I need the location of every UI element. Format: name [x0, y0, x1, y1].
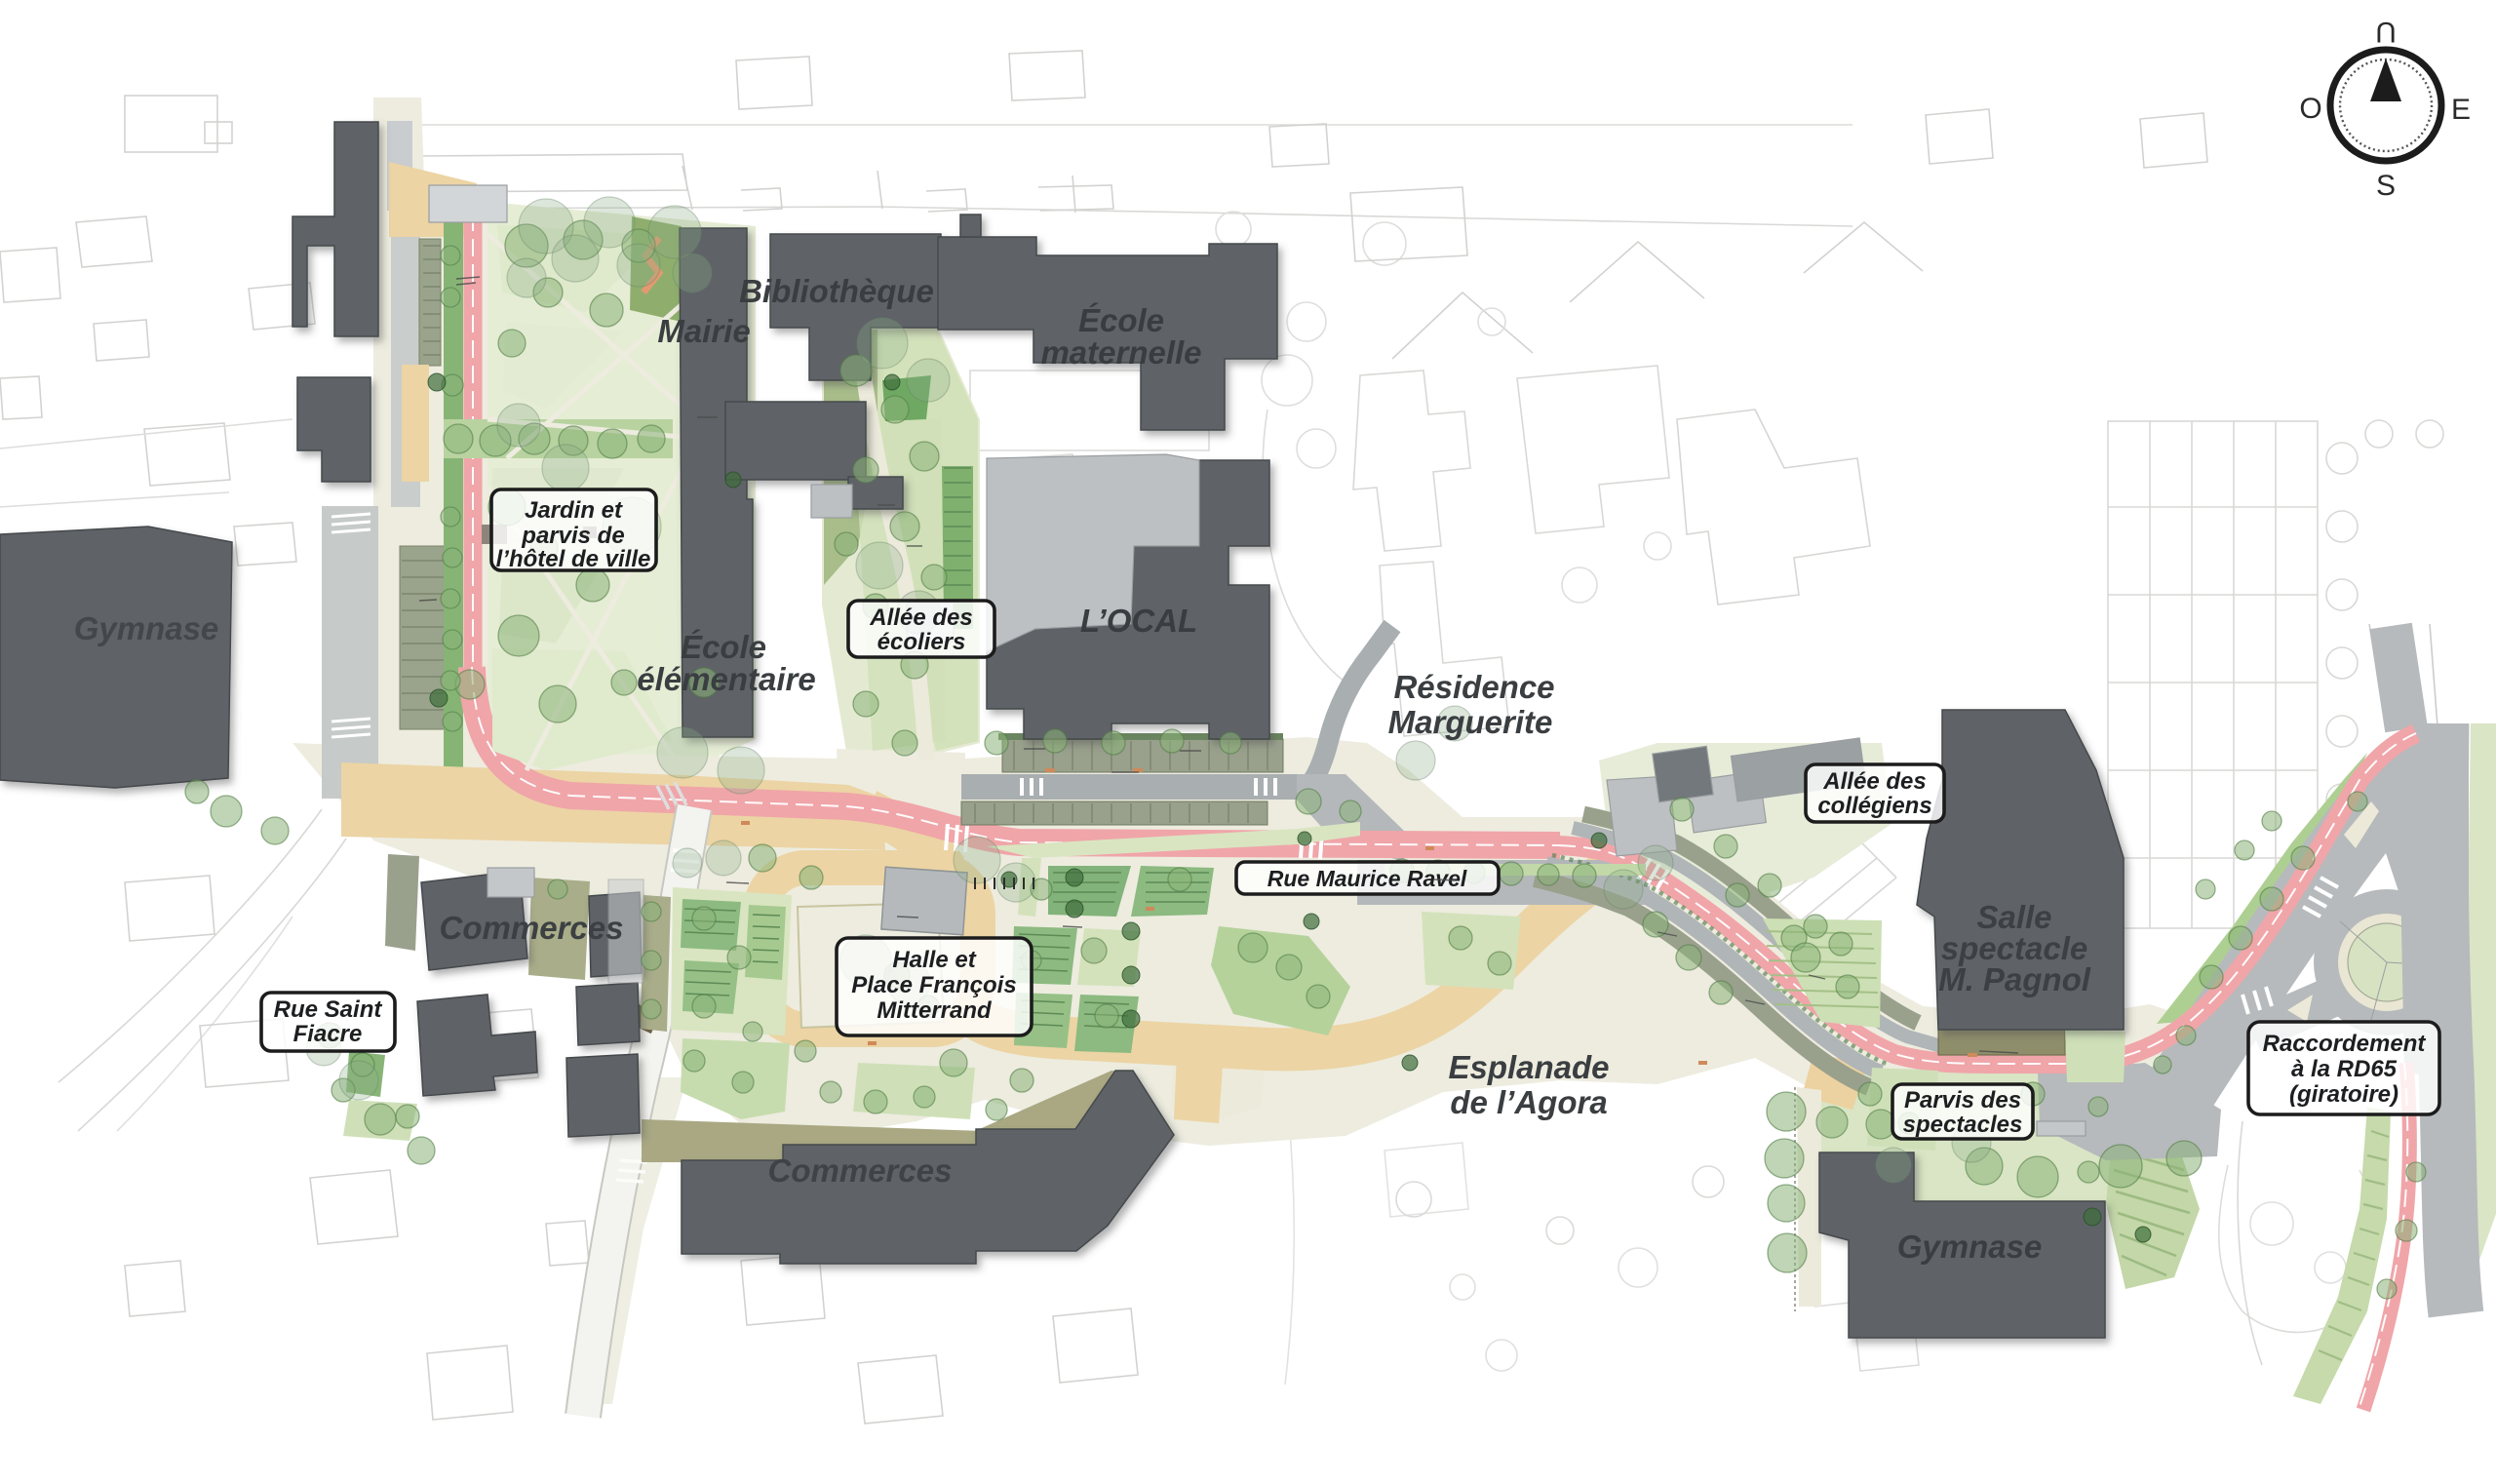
svg-text:à la RD65: à la RD65: [2291, 1056, 2398, 1082]
svg-text:écoliers: écoliers: [877, 629, 966, 655]
svg-text:Rue Maurice Ravel: Rue Maurice Ravel: [1267, 866, 1467, 891]
svg-text:Jardin et: Jardin et: [525, 497, 623, 524]
svg-text:Marguerite: Marguerite: [1388, 704, 1553, 740]
svg-text:Place François: Place François: [851, 972, 1016, 998]
svg-text:O: O: [2299, 93, 2321, 125]
svg-text:Parvis des: Parvis des: [1904, 1087, 2021, 1113]
svg-text:École: École: [1078, 302, 1164, 338]
svg-text:Bibliothèque: Bibliothèque: [739, 273, 934, 309]
svg-text:parvis de: parvis de: [521, 523, 624, 549]
svg-text:Allée des: Allée des: [869, 605, 972, 631]
svg-text:Résidence: Résidence: [1393, 669, 1554, 705]
svg-text:maternelle: maternelle: [1040, 334, 1201, 371]
svg-text:U: U: [2375, 16, 2397, 48]
svg-text:Esplanade: Esplanade: [1448, 1049, 1609, 1085]
svg-text:Raccordement: Raccordement: [2263, 1031, 2427, 1057]
svg-text:École: École: [681, 629, 766, 665]
svg-text:Commerces: Commerces: [768, 1152, 953, 1189]
svg-text:Mairie: Mairie: [657, 313, 750, 349]
svg-text:Fiacre: Fiacre: [293, 1021, 363, 1047]
svg-text:Rue Saint: Rue Saint: [274, 996, 383, 1023]
svg-text:l’hôtel de ville: l’hôtel de ville: [496, 546, 651, 572]
svg-text:Gymnase: Gymnase: [74, 610, 219, 646]
svg-text:Halle et: Halle et: [892, 947, 976, 973]
svg-text:L’OCAL: L’OCAL: [1080, 603, 1197, 639]
svg-text:collégiens: collégiens: [1817, 793, 1931, 819]
svg-text:spectacles: spectacles: [1903, 1112, 2023, 1138]
svg-text:Allée des: Allée des: [1822, 768, 1926, 795]
svg-text:S: S: [2376, 170, 2396, 202]
svg-text:de l’Agora: de l’Agora: [1450, 1084, 1607, 1120]
svg-text:(giratoire): (giratoire): [2289, 1081, 2398, 1108]
svg-text:E: E: [2451, 94, 2471, 126]
svg-text:Gymnase: Gymnase: [1897, 1229, 2043, 1265]
svg-text:Commerces: Commerces: [440, 910, 624, 946]
svg-text:M. Pagnol: M. Pagnol: [1938, 961, 2091, 997]
svg-text:élémentaire: élémentaire: [637, 661, 815, 697]
svg-text:Mitterrand: Mitterrand: [877, 997, 993, 1024]
